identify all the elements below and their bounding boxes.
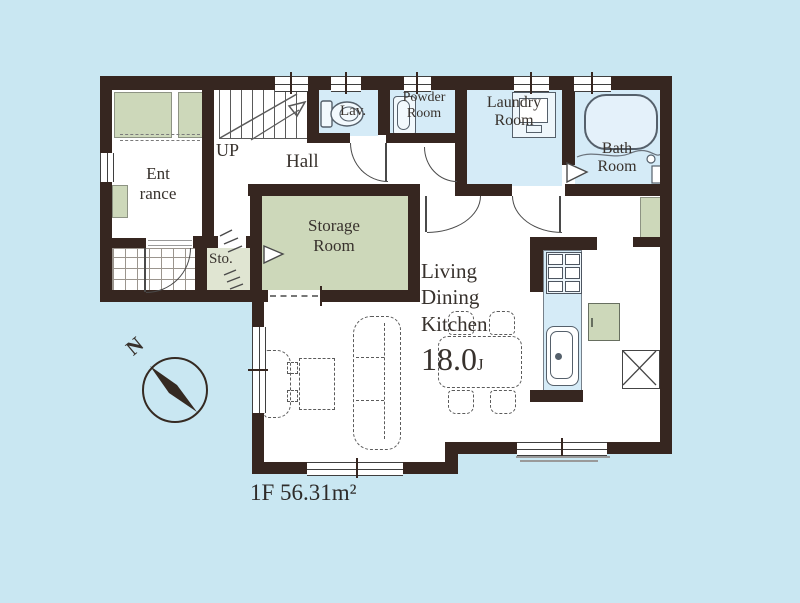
refrigerator-space-icon (622, 350, 660, 389)
powder-room-label-line2: Room (394, 106, 454, 122)
dining-chair (490, 390, 516, 414)
wall-segment (100, 290, 268, 302)
window (100, 153, 114, 182)
hall-label: Hall (286, 151, 319, 173)
ldk-label-line3: Kitchen (421, 311, 487, 337)
tv-board-knob (287, 390, 298, 402)
entrance-closet-b (178, 92, 204, 138)
tv-board-knob (287, 362, 298, 374)
kitchen-sink-icon (546, 326, 579, 386)
storage-room-label-line1: Storage (288, 216, 380, 236)
folding-door-icon (222, 268, 246, 290)
entrance-label: Ent rance (116, 164, 200, 203)
ldk-door-leaf (425, 196, 427, 232)
window-tick (345, 72, 347, 94)
window (307, 462, 403, 476)
terrace-line (516, 456, 610, 458)
ldk-label: Living Dining Kitchen 18.0J (421, 258, 487, 379)
coffee-table (299, 358, 335, 410)
laundry-room-label: Laundry Room (468, 94, 560, 131)
storage-room-label: Storage Room (288, 216, 380, 255)
powder-room-label-line1: Powder (394, 90, 454, 106)
wall-segment (660, 76, 672, 454)
storage-room-label-line2: Room (288, 236, 380, 256)
laundry-room-label-line2: Room (468, 112, 560, 130)
lavatory-door-leaf (385, 143, 387, 181)
tv-board (264, 350, 291, 418)
staircase-direction-arrow (217, 88, 309, 142)
storage-sliding-door-icon (263, 245, 285, 265)
sto-label: Sto. (209, 251, 233, 268)
ldk-label-line2: Dining (421, 284, 487, 310)
wall-segment (193, 236, 218, 248)
powder-room-label: Powder Room (394, 90, 454, 122)
entrance-step-line (120, 134, 200, 135)
wall-segment (100, 238, 146, 248)
wall-segment (455, 184, 512, 196)
wall-segment (322, 290, 420, 302)
storage-opening (268, 290, 322, 302)
bath-room-label: Bath Room (578, 140, 656, 177)
wall-segment (378, 88, 390, 135)
bath-room-label-line1: Bath (578, 140, 656, 158)
sofa (353, 316, 401, 450)
wall-segment (530, 390, 583, 402)
window-tick (561, 438, 563, 458)
ldk-size: 18.0J (421, 339, 487, 379)
window-tick (591, 72, 593, 94)
window-tick (320, 286, 322, 306)
wall-segment (246, 236, 262, 248)
door-sill (148, 245, 192, 246)
window-tick (356, 458, 358, 478)
kitchen-cabinet (588, 303, 620, 341)
wall-segment (100, 76, 112, 153)
entrance-door-leaf (144, 248, 146, 292)
stove-icon (546, 252, 582, 294)
ldk-size-unit: J (477, 355, 484, 374)
dining-chair (448, 390, 474, 414)
wall-segment (562, 88, 575, 165)
floor-plan: Ent rance UP Hall Lav. Powder Room Laund… (0, 0, 800, 603)
window-tick (290, 72, 292, 94)
laundry-door-leaf (559, 196, 561, 232)
terrace-line (520, 460, 598, 462)
ldk-label-line1: Living (421, 258, 487, 284)
entrance-step-line (120, 140, 200, 141)
entrance-label-line1: Ent (116, 164, 200, 184)
dining-chair (489, 311, 515, 335)
floor-area-label: 1F 56.31m² (250, 480, 357, 506)
entrance-closet-a (114, 92, 172, 138)
stairs-up-label: UP (216, 140, 239, 161)
wall-segment (314, 133, 350, 143)
laundry-room-label-line1: Laundry (468, 94, 560, 112)
wall-segment (530, 237, 543, 292)
compass-needle-icon (136, 350, 216, 430)
ldk-closet (640, 197, 662, 239)
wall-segment (565, 184, 672, 196)
ldk-size-value: 18.0 (421, 341, 477, 377)
lavatory-label: Lav. (340, 103, 366, 120)
window-tick (530, 72, 532, 94)
door-sill (148, 240, 192, 241)
wall-segment (202, 90, 214, 240)
window-tick (248, 369, 268, 371)
wall-segment (386, 133, 457, 143)
entrance-label-line2: rance (116, 184, 200, 204)
wall-segment (248, 184, 420, 196)
wall-segment (408, 184, 420, 302)
bath-room-label-line2: Room (578, 158, 656, 176)
